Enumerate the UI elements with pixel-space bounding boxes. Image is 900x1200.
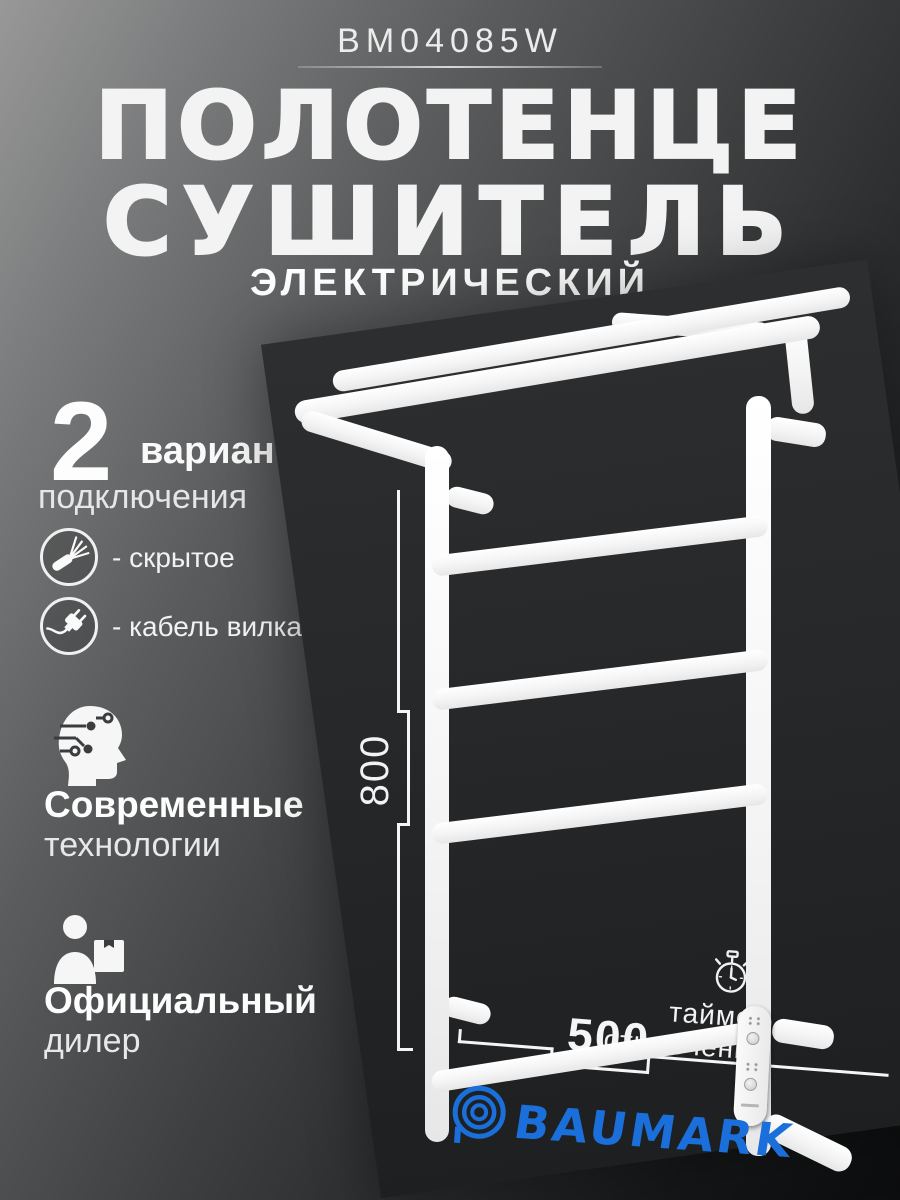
option-plug-label: - кабель вилка — [112, 611, 302, 643]
rail-left — [425, 446, 449, 1142]
baumark-rings-icon — [447, 1082, 511, 1150]
dim-800-notch — [407, 710, 410, 826]
dealer-box-icon — [52, 914, 136, 989]
page-title-line2: СУШИТЕЛЬ — [0, 176, 900, 270]
dim-800-line-bottom — [397, 823, 400, 1051]
plug-icon — [40, 597, 98, 655]
dealer-label-line1: Официальный — [44, 980, 317, 1022]
model-number: BM04085W — [0, 22, 900, 61]
variants-sublabel: подключения — [38, 478, 247, 517]
cable-icon — [43, 531, 96, 584]
power-button — [746, 1032, 760, 1046]
cable-icon — [40, 528, 98, 586]
timer-button — [744, 1078, 758, 1092]
dim-800-line-top — [397, 490, 400, 712]
brand-name: BAUMARK — [510, 1095, 798, 1168]
plug-icon — [43, 600, 96, 653]
height-dimension-label: 800 — [355, 725, 395, 815]
dealer-label-line2: дилер — [44, 1022, 141, 1061]
led-indicators — [746, 1016, 763, 1027]
option-hidden-label: - скрытое — [112, 542, 235, 574]
product-poster: BM04085W ПОЛОТЕНЦЕ СУШИТЕЛЬ ЭЛЕКТРИЧЕСКИ… — [0, 0, 900, 1200]
led-indicators — [744, 1062, 761, 1073]
model-underline — [298, 66, 602, 68]
tech-label-line2: технологии — [44, 826, 221, 865]
tech-label-line1: Современные — [44, 784, 304, 826]
page-title-line1: ПОЛОТЕНЦЕ — [0, 80, 900, 174]
dealer-box-icon — [52, 914, 136, 984]
dim-800-end-tick — [397, 1048, 413, 1051]
ai-head-icon — [46, 704, 138, 791]
ai-head-icon — [46, 704, 138, 786]
